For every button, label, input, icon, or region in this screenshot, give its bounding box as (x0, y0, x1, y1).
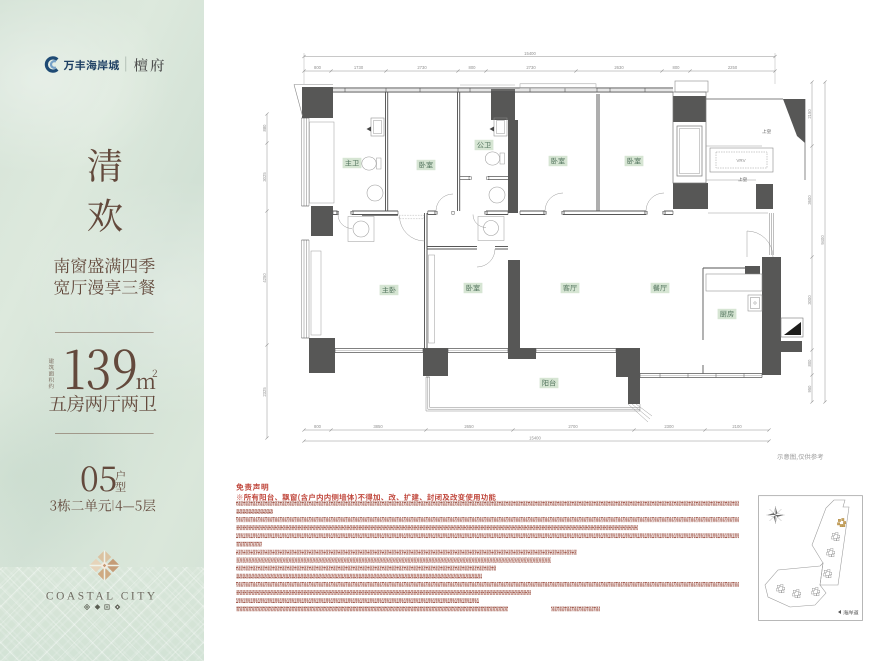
svg-text:3600: 3600 (807, 195, 812, 205)
svg-text:3850: 3850 (373, 424, 383, 429)
svg-text:2700: 2700 (568, 424, 578, 429)
svg-text:2650: 2650 (464, 424, 474, 429)
svg-text:880: 880 (262, 124, 267, 132)
svg-text:2730: 2730 (526, 65, 536, 70)
svg-text:2300: 2300 (664, 424, 674, 429)
svg-text:2150: 2150 (807, 109, 812, 119)
svg-text:800: 800 (469, 65, 477, 70)
svg-text:800: 800 (314, 65, 322, 70)
svg-text:15400: 15400 (524, 51, 536, 56)
svg-text:VRV: VRV (736, 158, 745, 163)
svg-text:2630: 2630 (614, 65, 624, 70)
svg-text:1730: 1730 (354, 65, 364, 70)
svg-text:2100: 2100 (732, 424, 742, 429)
svg-text:800: 800 (673, 65, 681, 70)
svg-text:800: 800 (807, 359, 812, 367)
svg-text:800: 800 (314, 424, 322, 429)
svg-text:2325: 2325 (262, 387, 267, 397)
svg-text:3025: 3025 (262, 172, 267, 182)
svg-text:COASTAL CITY: COASTAL CITY (46, 591, 158, 603)
svg-text:15400: 15400 (529, 436, 541, 441)
svg-text:950: 950 (807, 385, 812, 393)
svg-text:2250: 2250 (728, 65, 738, 70)
svg-text:3000: 3000 (807, 295, 812, 305)
svg-text:4250: 4250 (262, 273, 267, 283)
svg-text:9400: 9400 (820, 235, 825, 245)
svg-text:2730: 2730 (417, 65, 427, 70)
